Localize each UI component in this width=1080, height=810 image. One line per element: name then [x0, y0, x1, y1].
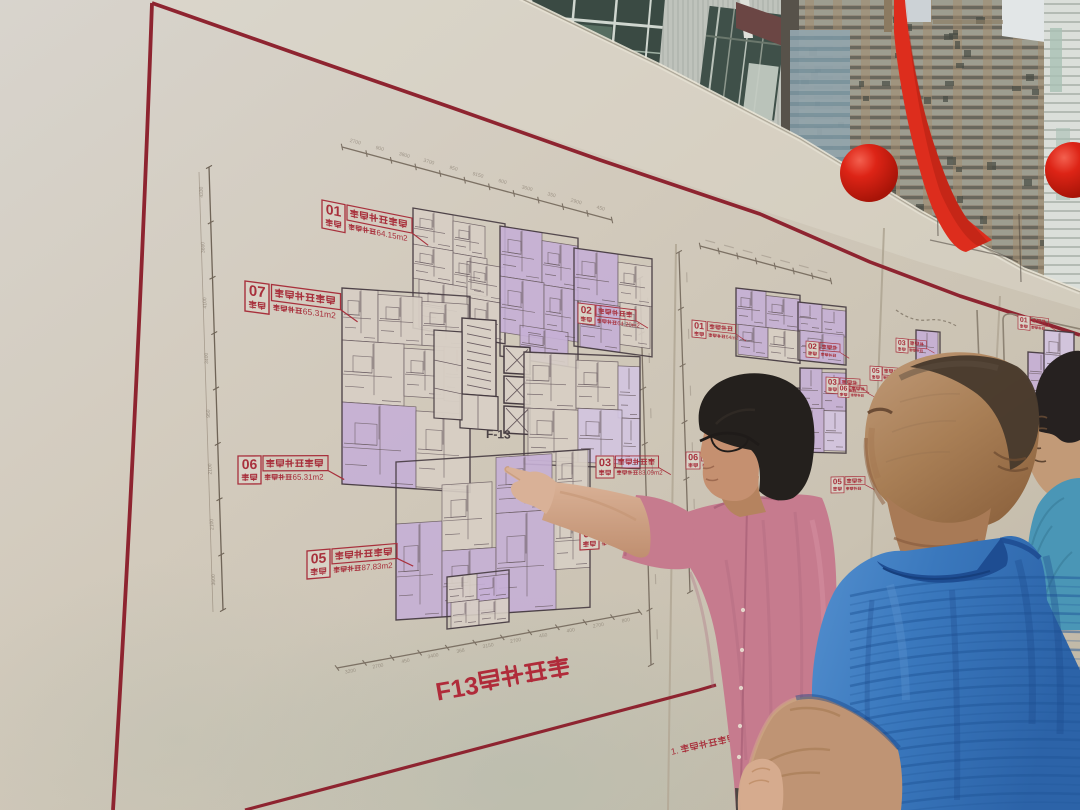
svg-text:01: 01 [694, 320, 704, 331]
svg-text:F-13: F-13 [486, 427, 511, 442]
svg-text:02: 02 [581, 305, 593, 317]
svg-text:03: 03 [898, 340, 906, 348]
svg-text:05: 05 [872, 368, 880, 376]
svg-text:83.09m2: 83.09m2 [639, 470, 664, 477]
svg-text:06: 06 [688, 452, 698, 462]
svg-text:03: 03 [828, 377, 837, 387]
svg-text:06: 06 [242, 456, 258, 472]
svg-text:05: 05 [833, 477, 842, 486]
svg-text:65.31m2: 65.31m2 [293, 473, 325, 482]
svg-text:01: 01 [326, 201, 342, 220]
svg-text:03: 03 [599, 457, 611, 469]
svg-text:02: 02 [808, 341, 817, 351]
svg-text:07: 07 [249, 282, 266, 301]
svg-text:01: 01 [1020, 317, 1028, 325]
svg-text:06: 06 [840, 385, 848, 392]
svg-text:05: 05 [311, 549, 327, 566]
